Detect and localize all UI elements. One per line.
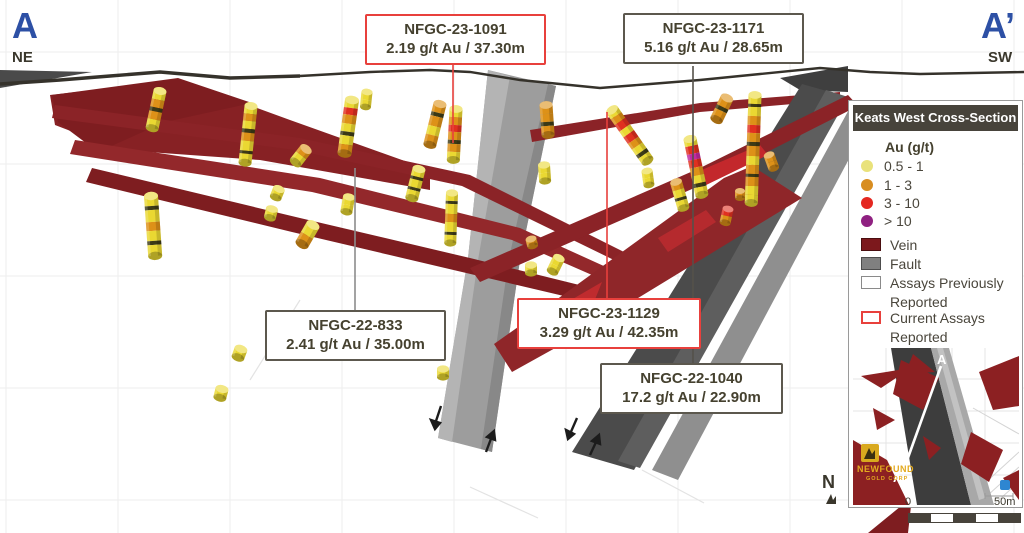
- legend-au-class: 0.5 - 1: [861, 157, 924, 175]
- drill-interval: [538, 161, 552, 185]
- legend-au-class: > 10: [861, 212, 912, 230]
- drillhole-id: NFGC-23-1091: [373, 20, 538, 40]
- scale-bar: [908, 513, 1021, 523]
- scalebar-start-label: 0: [905, 496, 911, 508]
- au-dot-1-3: [861, 179, 873, 191]
- drill-interval: [641, 167, 655, 189]
- drill-interval: [360, 88, 373, 111]
- au-dot-0-5-1: [861, 160, 873, 172]
- legend-item-previous-assays: Assays Previously Reported: [861, 274, 1012, 312]
- assay-value: 2.19 g/t Au / 37.30m: [373, 40, 538, 59]
- legend-item-vein: Vein: [861, 236, 1012, 255]
- north-arrow-icon: [824, 494, 838, 506]
- drill-interval: [423, 99, 448, 150]
- legend-item-fault: Fault: [861, 255, 1012, 274]
- legend-au-title: Au (g/t): [885, 139, 934, 155]
- legend-panel: Keats West Cross-Section Au (g/t) 0.5 - …: [848, 100, 1023, 508]
- drill-interval: [447, 105, 463, 164]
- inset-tool-icon: [1000, 480, 1010, 490]
- drillhole-id: NFGC-22-833: [273, 316, 438, 336]
- section-label-a-prime: A’: [981, 8, 1015, 44]
- au-dot-gt-10: [861, 215, 873, 227]
- inset-label-a: A: [937, 352, 947, 367]
- drillhole-id: NFGC-23-1171: [631, 19, 796, 39]
- assay-value: 17.2 g/t Au / 22.90m: [608, 389, 775, 408]
- assay-value: 5.16 g/t Au / 28.65m: [631, 39, 796, 58]
- cross-section-figure: A NE A’ SW NFGC-23-1091 2.19 g/t Au / 37…: [0, 0, 1024, 533]
- north-label: N: [822, 472, 835, 493]
- legend-item-current-assays: Current Assays Reported: [861, 309, 1012, 347]
- callout-nfgc-23-1171: NFGC-23-1171 5.16 g/t Au / 28.65m: [623, 13, 804, 64]
- drillhole-id: NFGC-22-1040: [608, 369, 775, 389]
- drill-interval: [437, 365, 449, 380]
- callout-nfgc-22-833: NFGC-22-833 2.41 g/t Au / 35.00m: [265, 310, 446, 361]
- drill-interval: [444, 189, 458, 247]
- inset-map: A A’ NEWFOUND GOLD CORP: [853, 348, 1019, 505]
- callout-nfgc-23-1129: NFGC-23-1129 3.29 g/t Au / 42.35m: [517, 298, 701, 349]
- assay-value: 2.41 g/t Au / 35.00m: [273, 336, 438, 355]
- vein-swatch: [861, 238, 881, 251]
- current-assays-swatch: [861, 311, 881, 324]
- au-dot-3-10: [861, 197, 873, 209]
- legend-au-class: 1 - 3: [861, 176, 912, 194]
- assay-value: 3.29 g/t Au / 42.35m: [525, 324, 693, 343]
- legend-au-class: 3 - 10: [861, 194, 920, 212]
- drill-interval: [213, 384, 230, 403]
- svg-text:NEWFOUND: NEWFOUND: [857, 464, 914, 474]
- section-label-a: A: [12, 8, 38, 44]
- drill-interval: [230, 343, 248, 363]
- drill-interval: [735, 188, 745, 201]
- drill-interval: [539, 101, 555, 140]
- section-dir-sw: SW: [988, 50, 1012, 65]
- section-dir-ne: NE: [12, 50, 33, 65]
- callout-nfgc-23-1091: NFGC-23-1091 2.19 g/t Au / 37.30m: [365, 14, 546, 65]
- legend-title: Keats West Cross-Section: [853, 105, 1018, 131]
- drill-interval: [144, 191, 163, 260]
- scalebar-end-label: 50m: [994, 496, 1015, 508]
- drillhole-id: NFGC-23-1129: [525, 304, 693, 324]
- fault-swatch: [861, 257, 881, 270]
- previous-assays-swatch: [861, 276, 881, 289]
- svg-text:GOLD CORP: GOLD CORP: [866, 476, 908, 482]
- drill-interval: [525, 261, 537, 276]
- callout-nfgc-22-1040: NFGC-22-1040 17.2 g/t Au / 22.90m: [600, 363, 783, 414]
